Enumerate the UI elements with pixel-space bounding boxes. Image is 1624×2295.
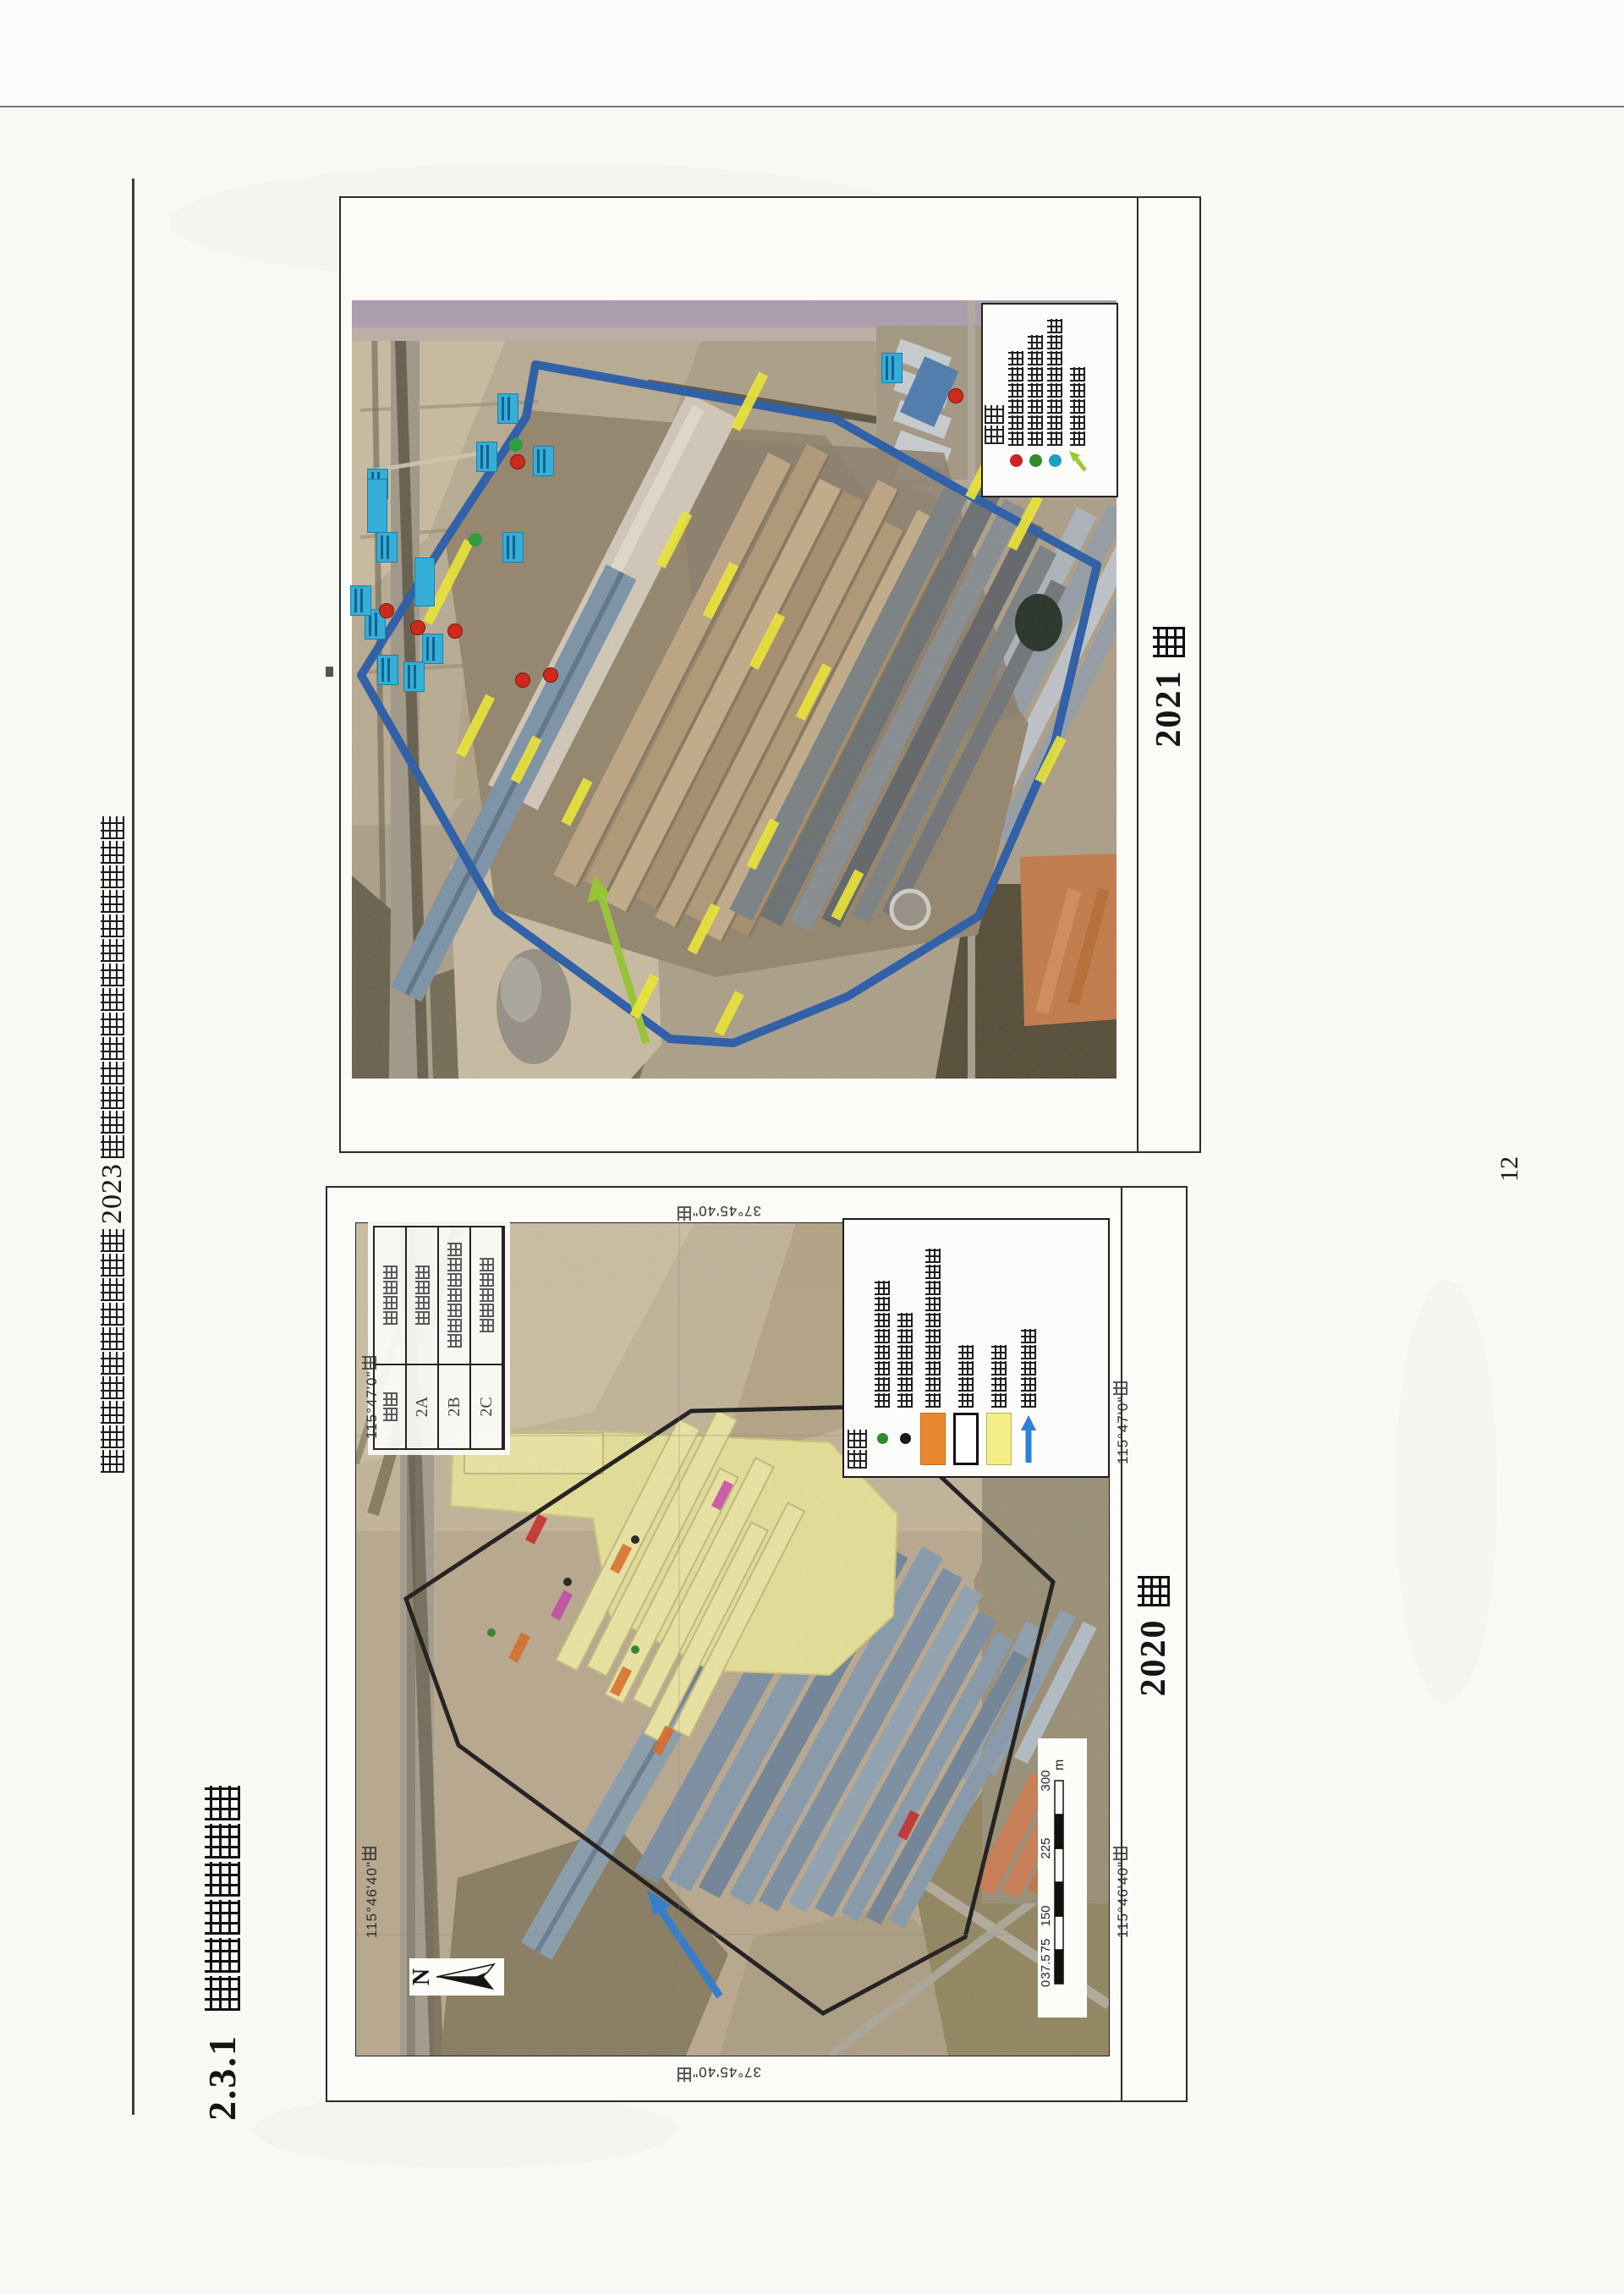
svg-text:225: 225 <box>1039 1837 1053 1859</box>
svg-text:300: 300 <box>1039 1770 1053 1791</box>
svg-text:150: 150 <box>1039 1905 1053 1926</box>
svg-text:75: 75 <box>1039 1939 1053 1953</box>
svg-text:37.5: 37.5 <box>1039 1954 1053 1979</box>
svg-text:0: 0 <box>1039 1980 1053 1987</box>
svg-text:m: m <box>1052 1760 1067 1771</box>
